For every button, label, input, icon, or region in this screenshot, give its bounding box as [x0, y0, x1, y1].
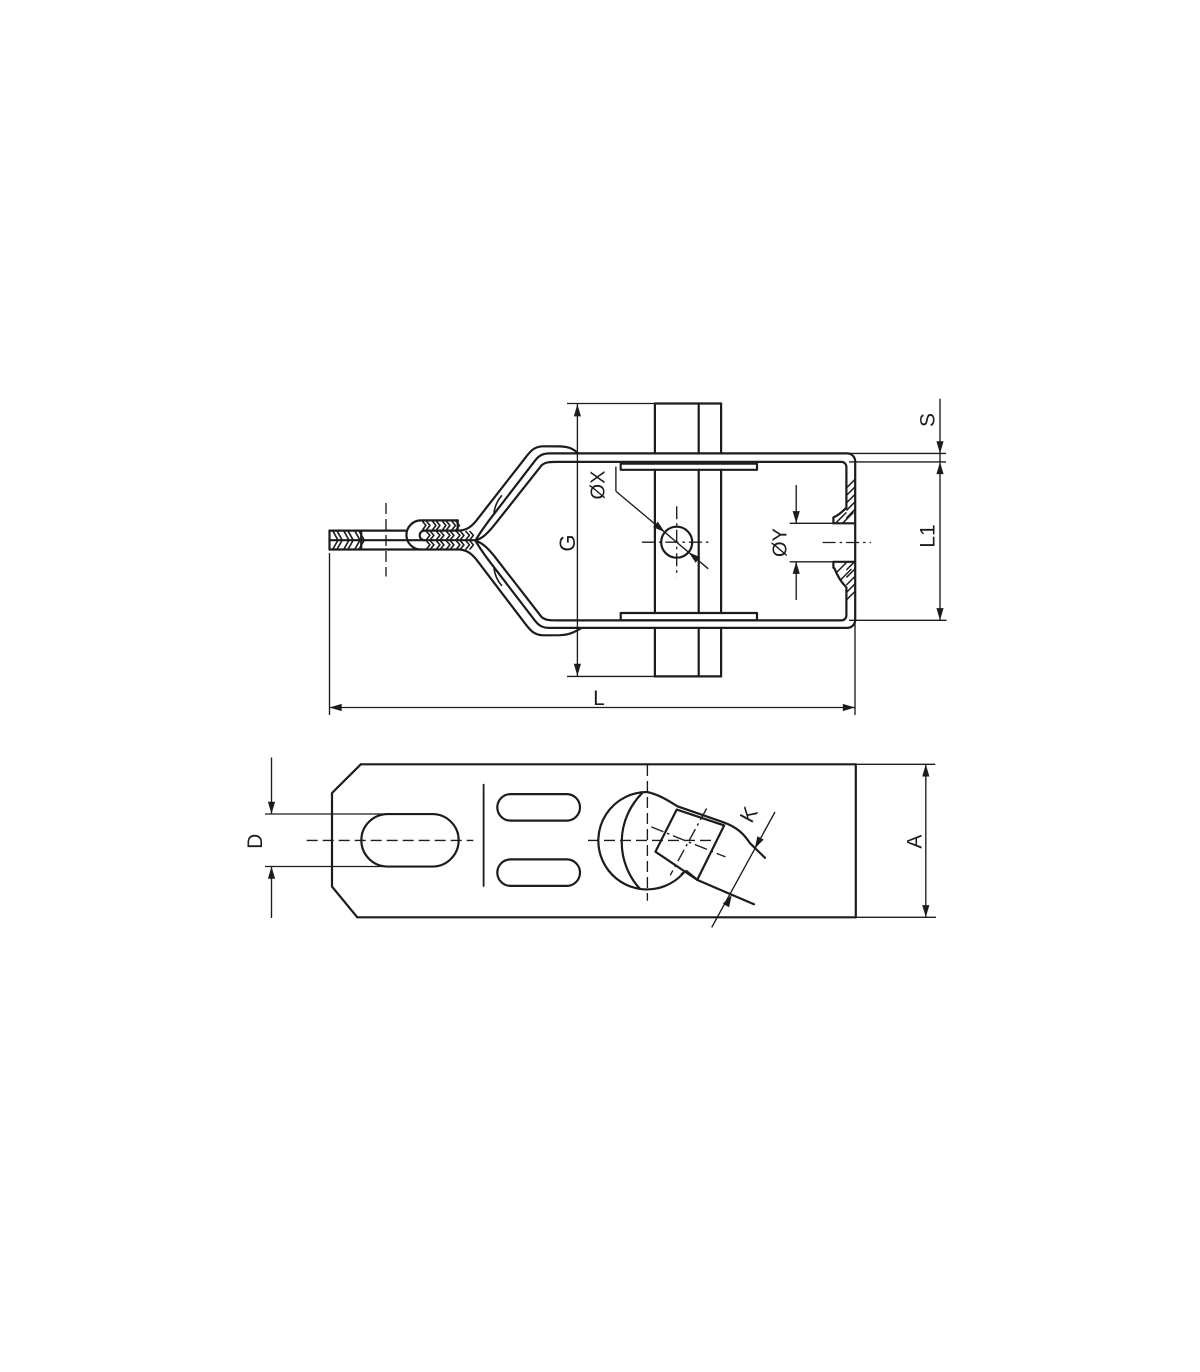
- svg-text:L: L: [593, 687, 605, 710]
- svg-text:S: S: [917, 413, 940, 427]
- svg-text:G: G: [555, 534, 580, 551]
- svg-text:L1: L1: [917, 524, 940, 547]
- svg-text:A: A: [904, 835, 927, 849]
- svg-text:D: D: [244, 834, 267, 849]
- svg-text:ØX: ØX: [588, 471, 610, 500]
- svg-text:ØY: ØY: [770, 528, 792, 557]
